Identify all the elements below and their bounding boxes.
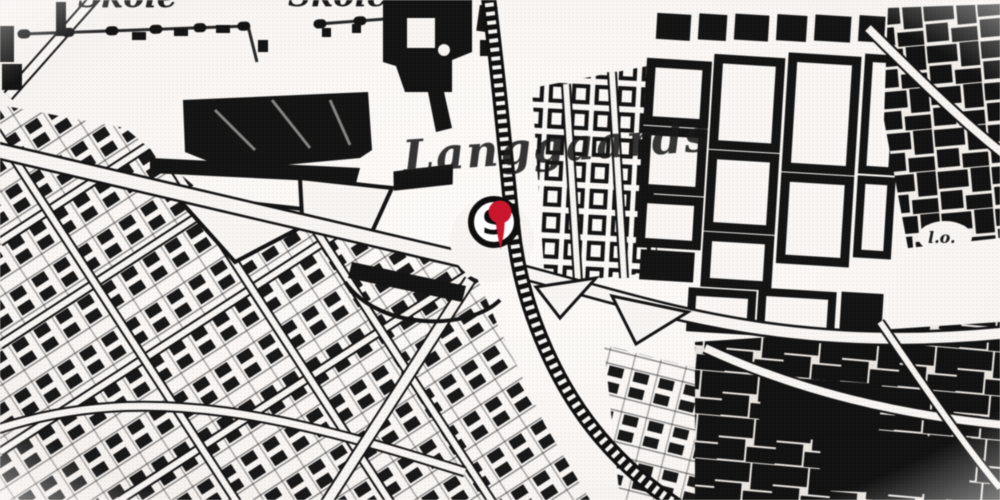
map-viewport[interactable]: Langgaards Skole Skole l.o. S bbox=[0, 0, 1000, 500]
vignette-overlay bbox=[0, 0, 1000, 500]
map-canvas[interactable]: Langgaards Skole Skole l.o. S bbox=[0, 0, 1000, 500]
